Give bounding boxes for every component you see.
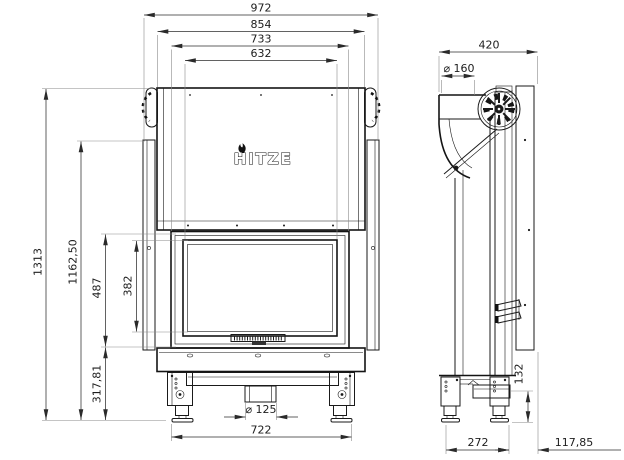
hood-corner-right [365, 88, 380, 127]
side-leg-front [441, 377, 460, 422]
front-leg-right [330, 373, 355, 423]
dim-hood-width-label: 854 [251, 18, 272, 31]
damper-rod [444, 129, 499, 178]
side-base-tray [460, 380, 510, 399]
front-view: HITZE [143, 88, 379, 422]
dim-glass-height-label: 382 [122, 276, 135, 297]
dim-door-width: 733 [172, 33, 349, 232]
side-strip-right [367, 140, 379, 350]
brand-logo: HITZE [234, 143, 293, 168]
dim-glass-width-label: 632 [251, 47, 272, 60]
brand-logo-text: HITZE [234, 150, 293, 168]
handle-bracket [495, 299, 521, 323]
dim-rear-base-height: 132 [511, 364, 533, 423]
door-frame [171, 232, 349, 349]
dim-intake-diameter: ⌀ 125 [224, 403, 298, 420]
technical-drawing: HITZE [0, 0, 624, 460]
dim-overall-width-label: 972 [251, 2, 272, 15]
front-leg-left [168, 373, 194, 423]
door-glass [183, 240, 337, 336]
dim-depth-label: 420 [479, 39, 500, 52]
air-intake-duct [245, 386, 276, 402]
side-strip-left [143, 140, 155, 350]
hood-corner-left [143, 88, 158, 127]
dim-feet-span-front-label: 722 [251, 424, 272, 437]
side-leg-rear [490, 377, 509, 422]
dim-rear-base-height-label: 132 [513, 364, 526, 385]
dim-door-width-label: 733 [251, 33, 272, 46]
dim-door-height-label: 487 [91, 278, 104, 299]
dim-feet-span-side-label: 272 [468, 436, 489, 449]
base-band [157, 348, 365, 372]
dim-feet-span-front: 722 [172, 424, 352, 442]
dim-side-panel-height-label: 1162,50 [67, 239, 80, 285]
dim-intake-diameter-label: ⌀ 125 [245, 403, 276, 416]
dim-glass-width: 632 [185, 47, 337, 239]
dim-base-height: 317,81 [91, 348, 106, 421]
side-body [439, 90, 516, 376]
flue-duct [439, 95, 486, 178]
dim-flue-diameter-label: ⌀ 160 [443, 62, 474, 75]
dim-overall-height-label: 1313 [32, 248, 45, 276]
drawing-canvas: HITZE [0, 0, 624, 460]
dim-flue-diameter: ⌀ 160 [442, 62, 475, 95]
dim-base-height-label: 317,81 [91, 365, 104, 404]
dim-rear-offset-label: 117,85 [555, 436, 594, 449]
flame-icon [238, 143, 245, 152]
bottom-tray [187, 373, 339, 386]
flue-fan-wheel [478, 86, 520, 130]
